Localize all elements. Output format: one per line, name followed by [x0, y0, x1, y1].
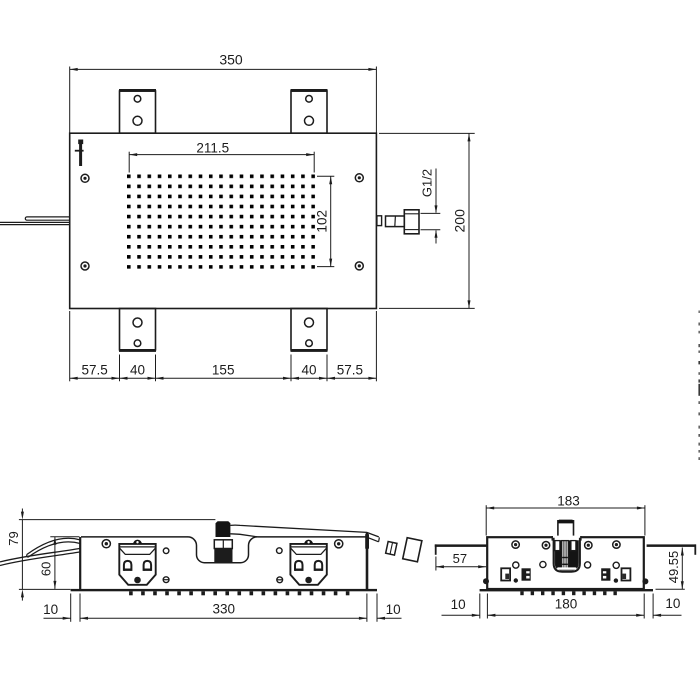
svg-text:180: 180 [555, 597, 578, 612]
svg-text:57: 57 [453, 551, 467, 566]
svg-text:79: 79 [6, 531, 21, 545]
svg-text:200: 200 [452, 209, 468, 233]
svg-text:10: 10 [665, 596, 680, 611]
svg-text:10: 10 [43, 602, 58, 617]
svg-text:183: 183 [557, 494, 580, 509]
svg-text:40: 40 [301, 362, 316, 377]
svg-text:155: 155 [212, 362, 235, 377]
svg-text:211.5: 211.5 [196, 140, 229, 155]
svg-text:40: 40 [130, 362, 145, 377]
svg-text:350: 350 [219, 51, 243, 67]
svg-text:60: 60 [38, 562, 53, 576]
svg-text:49.55: 49.55 [666, 551, 681, 584]
svg-text:10: 10 [386, 602, 401, 617]
svg-text:G1/2: G1/2 [420, 169, 435, 197]
svg-text:102: 102 [315, 210, 330, 233]
svg-text:330: 330 [213, 601, 236, 616]
svg-text:10: 10 [451, 597, 466, 612]
svg-text:57.5: 57.5 [337, 362, 363, 377]
svg-text:57.5: 57.5 [81, 362, 107, 377]
